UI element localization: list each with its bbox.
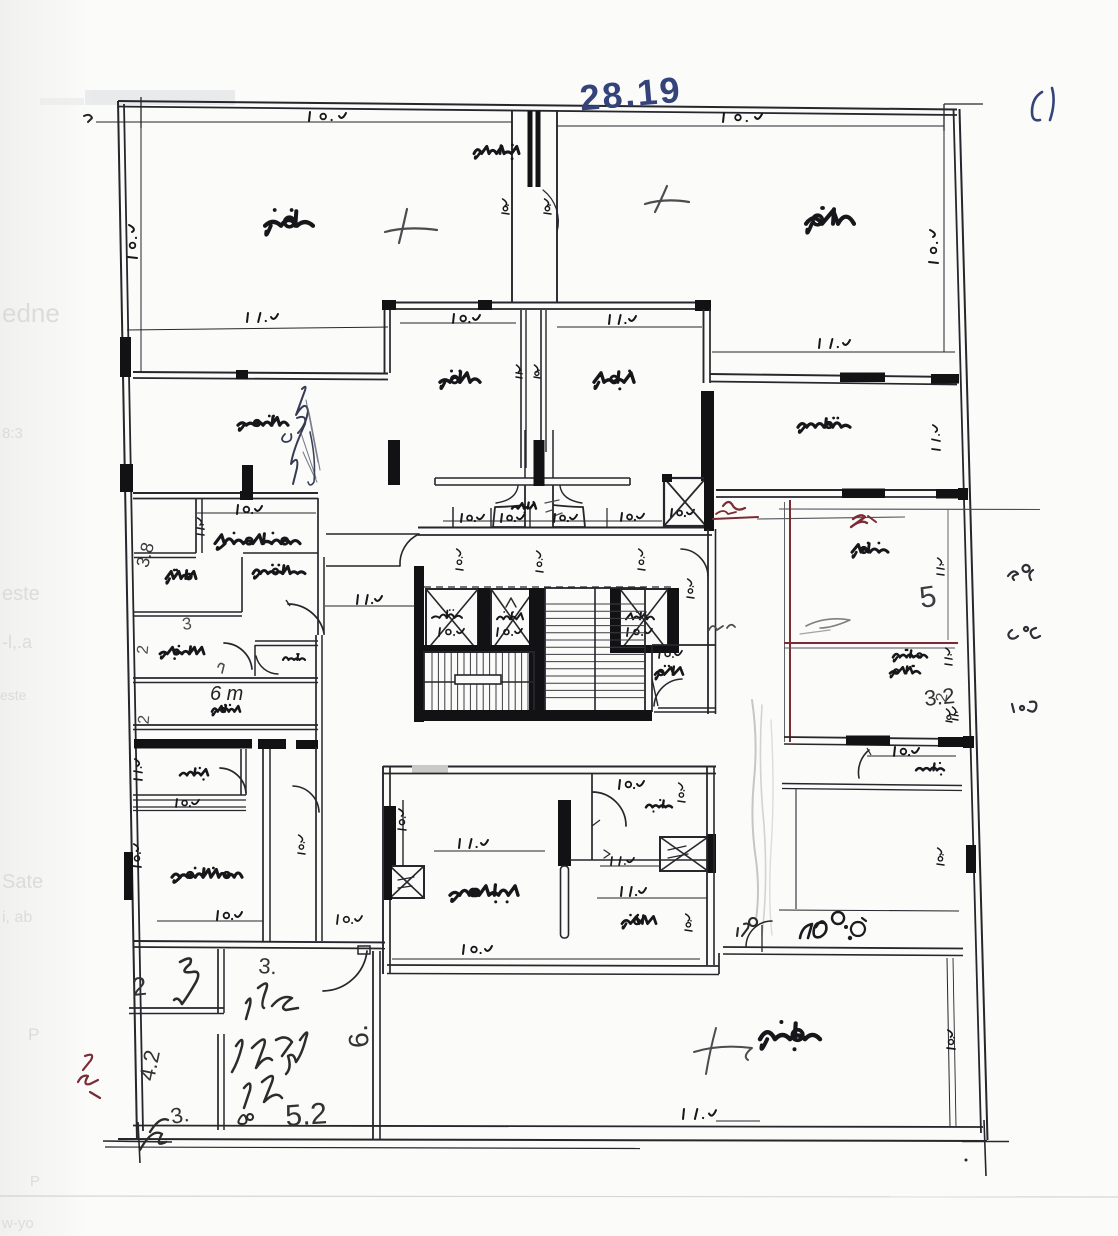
svg-text:3.: 3. bbox=[258, 953, 278, 979]
svg-text:6 m: 6 m bbox=[210, 683, 243, 705]
svg-text:6.: 6. bbox=[342, 1023, 375, 1049]
svg-text:este: este bbox=[0, 687, 27, 703]
svg-text:5.2: 5.2 bbox=[284, 1097, 328, 1133]
svg-text:8:3: 8:3 bbox=[2, 425, 23, 442]
svg-text:P: P bbox=[28, 1025, 39, 1044]
svg-text:w-yo: w-yo bbox=[1, 1215, 34, 1232]
svg-text:i, ab: i, ab bbox=[2, 909, 32, 926]
svg-text:edne: edne bbox=[2, 298, 60, 328]
svg-text:-l,.a: -l,.a bbox=[2, 632, 33, 652]
svg-text:Sate: Sate bbox=[2, 871, 43, 893]
svg-text:2: 2 bbox=[136, 714, 154, 724]
svg-text:P: P bbox=[30, 1173, 40, 1190]
svg-text:este: este bbox=[2, 583, 40, 605]
svg-text:2: 2 bbox=[135, 644, 153, 654]
